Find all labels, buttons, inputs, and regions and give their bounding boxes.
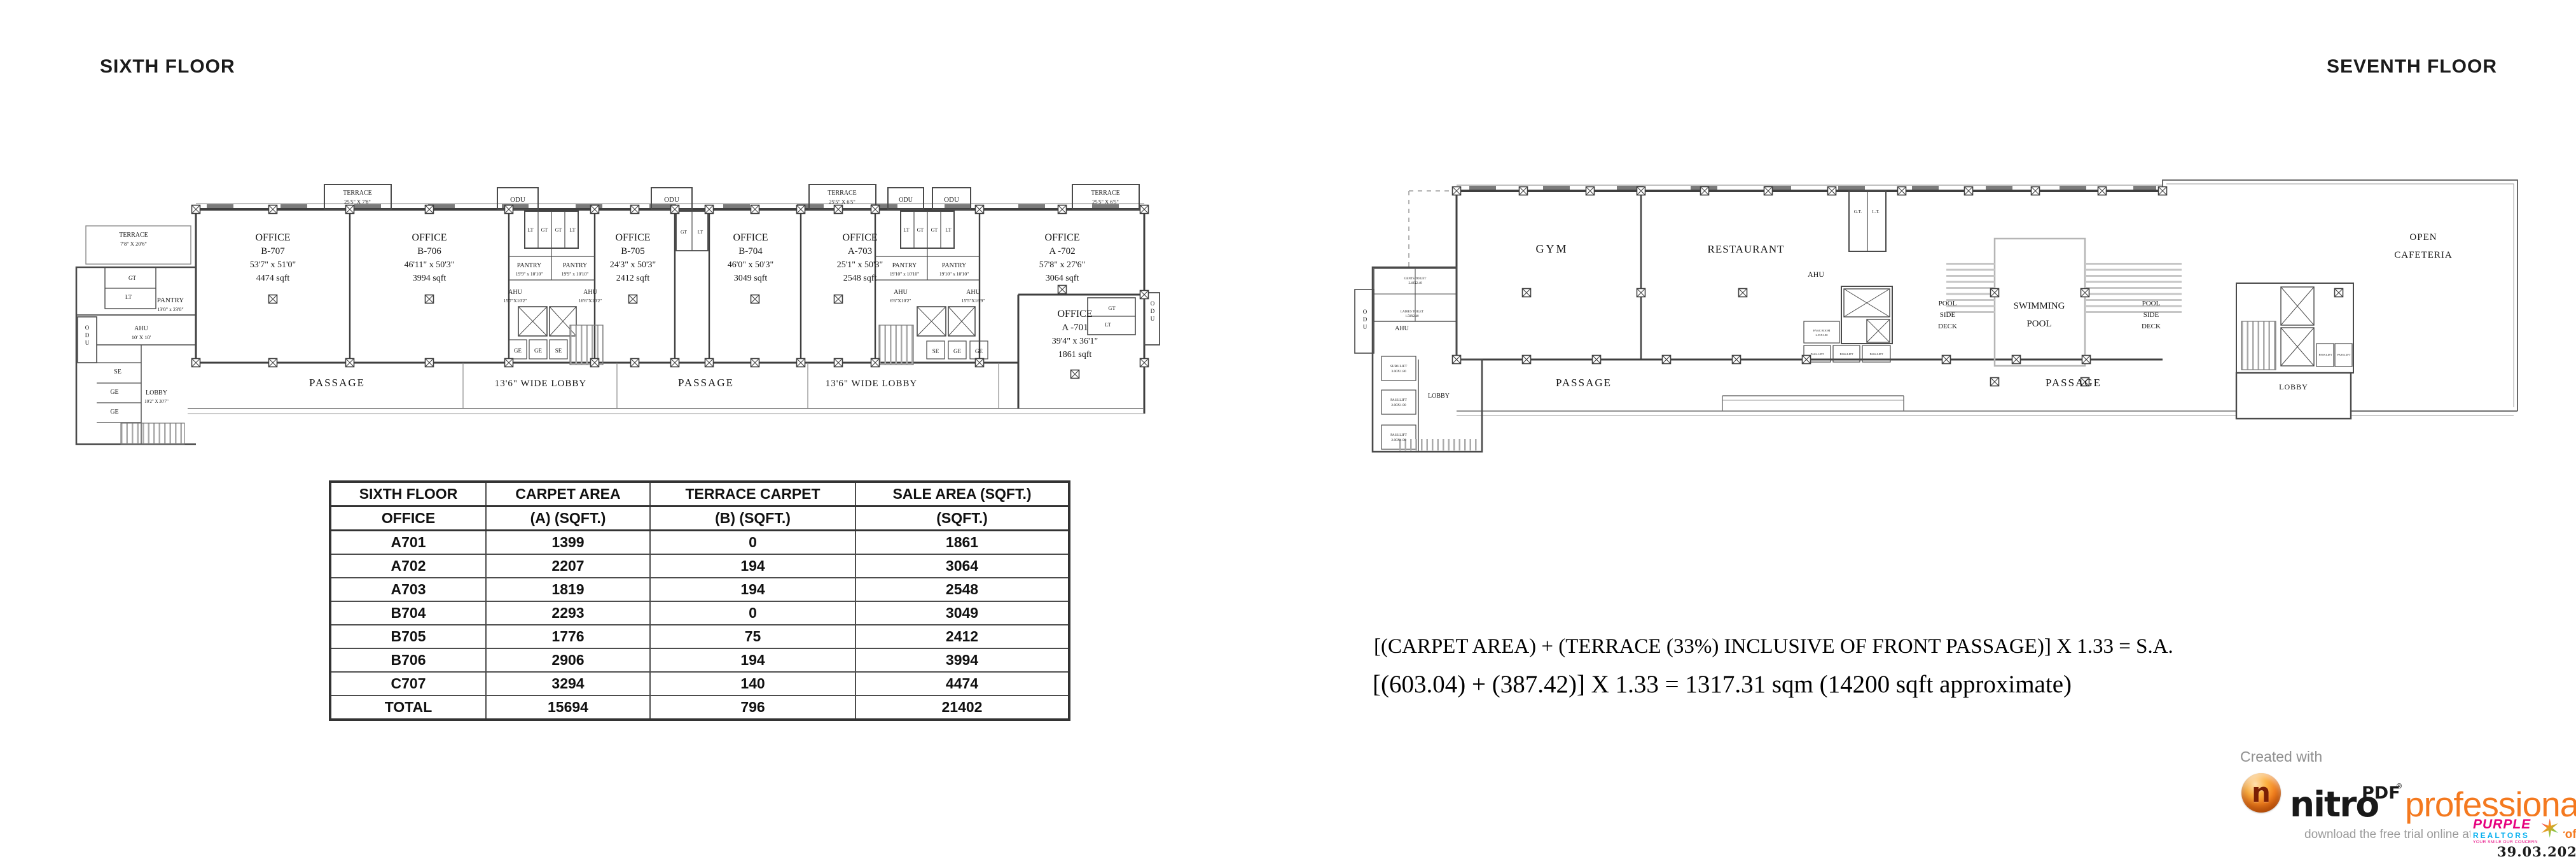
- ahu-label: AHU: [134, 325, 148, 332]
- gt-label: GT: [128, 275, 136, 281]
- ahu-dim: 6'6"X10'2": [890, 298, 911, 304]
- ge-label: GE: [110, 409, 118, 416]
- se-label: SE: [114, 368, 121, 375]
- room-dim: 24'3" x 50'3": [610, 260, 656, 270]
- pantry-label: PANTRY: [892, 262, 917, 269]
- terrace-label: TERRACE: [343, 190, 372, 197]
- passage-label: PASSAGE: [1556, 377, 1612, 389]
- purple-realtors-name: PURPLE: [2473, 818, 2538, 831]
- room-area: 1861 sqft: [1058, 350, 1092, 360]
- tagline-text: download the free trial online at: [2304, 828, 2476, 841]
- wide-lobby-label: 13'6" WIDE LOBBY: [495, 379, 587, 389]
- ge-label: GE: [514, 347, 522, 354]
- room-title: OFFICE: [1044, 232, 1079, 243]
- room-code: B-707: [261, 246, 285, 256]
- ge-label: GE: [975, 348, 983, 354]
- room-area: 2548 sqft: [843, 274, 877, 283]
- lt-label: LT: [569, 227, 575, 233]
- odu-label: ODU: [510, 196, 525, 204]
- room-title: OFFICE: [255, 232, 290, 243]
- room-dim: 39'4" x 36'1": [1052, 337, 1098, 346]
- open-cafeteria-label: CAFETERIA: [2394, 250, 2453, 260]
- terrace-cell: 194: [650, 578, 855, 601]
- carpet-cell: 2207: [486, 554, 650, 578]
- ge-label: GE: [110, 389, 118, 396]
- odu-label: ODU: [1363, 309, 1368, 330]
- ahu-label: AHU: [966, 289, 980, 296]
- plan7-right-core: [2236, 283, 2353, 419]
- room-title: OFFICE: [615, 232, 650, 243]
- room-title: OFFICE: [842, 232, 877, 243]
- plan6-columns: [192, 206, 1149, 379]
- terrace-label: TERRACE: [119, 232, 148, 239]
- pool-side-deck-label: POOL: [2142, 300, 2161, 307]
- sixth-floor-title: SIXTH FLOOR: [100, 56, 235, 78]
- plan7-columns: [1453, 187, 2343, 386]
- lift-label: PASS.LIFT: [1840, 353, 1853, 356]
- plan7-gt-lt-room: [1849, 191, 1886, 251]
- terrace-cell: 194: [650, 554, 855, 578]
- room-code: B-704: [738, 246, 763, 256]
- registered-mark: ®: [2397, 783, 2402, 790]
- plan7-left-tower: [1355, 267, 1482, 452]
- lobby-label: LOBBY: [146, 389, 167, 396]
- toilet-dim: 1.50X2.40: [1405, 315, 1419, 318]
- odu-label: ODU: [85, 325, 90, 346]
- sale-cell: 2412: [855, 625, 1069, 648]
- toilet-label: LADIES TOILET: [1401, 311, 1423, 314]
- lift-label: PASS.LIFT: [1870, 353, 1883, 356]
- pantry-label: PANTRY: [563, 262, 588, 269]
- table-row: A703 1819 194 2548: [330, 578, 1069, 601]
- toilet-label: GENTS TOILET: [1404, 277, 1427, 281]
- se-label: SE: [932, 348, 939, 354]
- ahu-label: AHU: [583, 289, 597, 296]
- lift-label: PASS.LIFT: [2319, 353, 2332, 356]
- purple-realtors-sub: REALTORS: [2473, 832, 2538, 839]
- terrace-dim: 25'5" X 7'8": [344, 199, 371, 205]
- gt-label: GT: [541, 227, 548, 233]
- gt-label: GT: [917, 227, 924, 233]
- pantry-label: PANTRY: [942, 262, 967, 269]
- room-dim: 46'11" x 50'3": [405, 260, 455, 270]
- room-code: A -701: [1062, 323, 1088, 333]
- se-label: SE: [555, 347, 562, 354]
- terrace-cell: 140: [650, 672, 855, 695]
- room-code: B-705: [621, 246, 645, 256]
- lt-label: LT: [698, 229, 703, 235]
- purple-realtors-star-icon: ✶: [2539, 818, 2561, 841]
- sale-cell: 3994: [855, 648, 1069, 672]
- gt-label: G.T.: [1854, 209, 1862, 214]
- table-header-cell: CARPET AREA: [486, 482, 650, 506]
- ahu-label: AHU: [508, 289, 522, 296]
- seventh-floor-title: SEVENTH FLOOR: [2327, 56, 2497, 78]
- terrace-dim: 7'8" X 20'6": [120, 241, 147, 247]
- table-header-cell: OFFICE: [330, 506, 486, 531]
- carpet-cell: 1776: [486, 625, 650, 648]
- terrace-cell: 75: [650, 625, 855, 648]
- pantry-dim: 13'0" x 23'0": [157, 307, 183, 312]
- room-code: B-706: [417, 246, 441, 256]
- nitro-pdf-text: PDF: [2362, 785, 2400, 802]
- room-area: 4474 sqft: [256, 274, 290, 283]
- sale-cell: 3064: [855, 554, 1069, 578]
- table-header-cell: TERRACE CARPET: [650, 482, 855, 506]
- gt-label: GT: [555, 227, 562, 233]
- table-row: A701 1399 0 1861: [330, 531, 1069, 555]
- room-title: OFFICE: [412, 232, 447, 243]
- odu-label: ODU: [944, 196, 959, 204]
- toilet-dim: 2.40X2.40: [1408, 282, 1422, 285]
- carpet-cell: 1399: [486, 531, 650, 555]
- lift-dim: 3.00X1.80: [1391, 370, 1406, 374]
- pool-side-deck-label: POOL: [1939, 300, 1957, 307]
- seventh-floor-plan: GYMRESTAURANTG.T.L.T.AHUPOOLSIDEDECKSWIM…: [1348, 162, 2525, 452]
- ahu-dim: 16'6"X10'2": [579, 298, 602, 304]
- passage-label: PASSAGE: [309, 377, 365, 389]
- gt-label: GT: [931, 227, 938, 233]
- carpet-cell: 3294: [486, 672, 650, 695]
- nitro-logo-letter: n: [2252, 779, 2271, 806]
- room-title: OFFICE: [1057, 309, 1092, 319]
- pool-side-deck-label: SIDE: [1940, 311, 1956, 319]
- terrace-label: TERRACE: [828, 190, 857, 197]
- total-sale-cell: 21402: [855, 695, 1069, 720]
- table-header-cell: (SQFT.): [855, 506, 1069, 531]
- pantry-dim: 19'10" x 10'10": [890, 271, 919, 277]
- sale-area-calculation: [(603.04) + (387.42)] X 1.33 = 1317.31 s…: [1373, 670, 2072, 699]
- swimming-pool-label: POOL: [2026, 319, 2051, 329]
- lobby-dim: 10'2" X 30'7": [144, 399, 169, 404]
- pool-side-deck-label: SIDE: [2143, 311, 2159, 319]
- pantry-dim: 19'9" x 10'10": [516, 271, 543, 277]
- office-cell: B706: [330, 648, 486, 672]
- office-cell: A701: [330, 531, 486, 555]
- lift-label: PASS.LIFT: [1390, 398, 1407, 402]
- nitro-logo-icon: n: [2241, 773, 2281, 813]
- total-terrace-cell: 796: [650, 695, 855, 720]
- table-row: B705 1776 75 2412: [330, 625, 1069, 648]
- room-code: A-703: [848, 246, 872, 256]
- lobby-label: LOBBY: [2279, 382, 2308, 391]
- terrace-cell: 0: [650, 601, 855, 625]
- ahu-label: AHU: [1808, 270, 1824, 279]
- pantry-dim: 19'10" x 10'10": [939, 271, 969, 277]
- room-area: 3064 sqft: [1046, 274, 1079, 283]
- page: SIXTH FLOOR SEVENTH FLOOR: [0, 0, 2576, 859]
- ge-label: GE: [953, 348, 961, 354]
- total-label-cell: TOTAL: [330, 695, 486, 720]
- lt-label: LT: [903, 227, 909, 233]
- office-cell: A702: [330, 554, 486, 578]
- table-subheader-row: OFFICE (A) (SQFT.) (B) (SQFT.) (SQFT.): [330, 506, 1069, 531]
- lift-label: PASS.LIFT: [1390, 433, 1407, 437]
- sale-cell: 3049: [855, 601, 1069, 625]
- open-cafeteria-label: OPEN: [2409, 232, 2437, 242]
- sixth-floor-area-table: SIXTH FLOOR CARPET AREA TERRACE CARPET S…: [329, 480, 1070, 721]
- passage-label: PASSAGE: [678, 377, 734, 389]
- sale-cell: 4474: [855, 672, 1069, 695]
- pool-side-deck-label: DECK: [2142, 323, 2161, 330]
- table-row: B704 2293 0 3049: [330, 601, 1069, 625]
- passage-label: PASSAGE: [2046, 377, 2102, 389]
- office-cell: B705: [330, 625, 486, 648]
- ahu-label: AHU: [1395, 325, 1409, 332]
- carpet-cell: 1819: [486, 578, 650, 601]
- date-stamp: 39.03.2021: [2497, 844, 2572, 859]
- ahu-dim: 15'5"X16'9": [962, 298, 985, 304]
- lift-label: PASS.LIFT: [1811, 353, 1824, 356]
- gt-label: GT: [1108, 305, 1116, 311]
- lt-label: LT: [527, 227, 533, 233]
- ahu-dim: 15'7"X10'2": [504, 298, 527, 304]
- ge-label: GE: [534, 347, 542, 354]
- table-header-cell: (B) (SQFT.): [650, 506, 855, 531]
- table-row: B706 2906 194 3994: [330, 648, 1069, 672]
- room-dim: 25'1" x 50'3": [837, 260, 883, 270]
- lift-label: SURV.LIFT: [1390, 365, 1408, 368]
- lt-label: LT: [1105, 321, 1111, 328]
- pantry-label: PANTRY: [157, 297, 184, 304]
- lt-label: L.T.: [1872, 209, 1880, 214]
- plan7-ahu-core: [1804, 286, 1892, 362]
- table-total-row: TOTAL 15694 796 21402: [330, 695, 1069, 720]
- table-row: C707 3294 140 4474: [330, 672, 1069, 695]
- sixth-floor-plan: TERRACE25'5" X 7'8"ODUODUTERRACE25'5" X …: [70, 172, 1164, 445]
- gt-label: GT: [681, 229, 687, 235]
- gym-label: GYM: [1535, 242, 1568, 255]
- plan6-core1: [509, 211, 603, 365]
- terrace-label: TERRACE: [1091, 190, 1120, 197]
- hvac-dim: 2.55X1.80: [1816, 333, 1829, 337]
- swimming-pool-label: SWIMMING: [2014, 301, 2065, 311]
- wide-lobby-label: 13'6" WIDE LOBBY: [826, 379, 918, 389]
- pantry-label: PANTRY: [517, 262, 542, 269]
- carpet-cell: 2906: [486, 648, 650, 672]
- sale-area-formula: [(CARPET AREA) + (TERRACE (33%) INCLUSIV…: [1374, 635, 2173, 659]
- lt-label: LT: [945, 227, 951, 233]
- odu-label: ODU: [664, 196, 679, 204]
- office-cell: A703: [330, 578, 486, 601]
- lift-dim: 2.00X1.90: [1391, 438, 1406, 442]
- restaurant-label: RESTAURANT: [1707, 243, 1784, 255]
- room-dim: 53'7" x 51'0": [250, 260, 296, 270]
- room-dim: 57'8" x 27'6": [1039, 260, 1085, 270]
- ahu-label: AHU: [894, 289, 908, 296]
- room-area: 2412 sqft: [616, 274, 650, 283]
- room-title: OFFICE: [733, 232, 768, 243]
- table-header-cell: (A) (SQFT.): [486, 506, 650, 531]
- pantry-dim: 19'9" x 10'10": [562, 271, 589, 277]
- terrace-cell: 0: [650, 531, 855, 555]
- office-cell: B704: [330, 601, 486, 625]
- carpet-cell: 2293: [486, 601, 650, 625]
- table-header-row: SIXTH FLOOR CARPET AREA TERRACE CARPET S…: [330, 482, 1069, 506]
- room-dim: 46'0" x 50'3": [728, 260, 773, 270]
- lobby-label: LOBBY: [1428, 393, 1450, 400]
- purple-realtors-logo: PURPLE REALTORS YOUR SMILE OUR CONCERN ✶: [2470, 816, 2563, 846]
- office-cell: C707: [330, 672, 486, 695]
- pool-side-deck-label: DECK: [1938, 323, 1957, 330]
- room-code: A -702: [1049, 246, 1075, 256]
- plan6-a701-shaft: [1088, 293, 1160, 345]
- odu-label: ODU: [1151, 300, 1155, 322]
- created-with-text: Created with: [2240, 748, 2322, 765]
- terrace-dim: 25'5" X 6'5": [1092, 199, 1119, 205]
- lift-dim: 2.00X1.90: [1391, 403, 1406, 407]
- plan6-core2: [875, 211, 988, 365]
- table-row: A702 2207 194 3064: [330, 554, 1069, 578]
- table-header-cell: SIXTH FLOOR: [330, 482, 486, 506]
- room-area: 3049 sqft: [734, 274, 768, 283]
- lt-label: LT: [125, 294, 132, 300]
- ahu-dim: 10' X 10': [132, 334, 151, 340]
- sale-cell: 2548: [855, 578, 1069, 601]
- odu-label: ODU: [899, 197, 913, 204]
- sale-cell: 1861: [855, 531, 1069, 555]
- terrace-dim: 25'5" X 6'5": [829, 199, 855, 205]
- table-header-cell: SALE AREA (SQFT.): [855, 482, 1069, 506]
- terrace-cell: 194: [650, 648, 855, 672]
- lift-label: PASS.LIFT: [2337, 353, 2351, 356]
- hvac-label: HVAC ROOM: [1813, 329, 1831, 332]
- room-area: 3994 sqft: [413, 274, 447, 283]
- total-carpet-cell: 15694: [486, 695, 650, 720]
